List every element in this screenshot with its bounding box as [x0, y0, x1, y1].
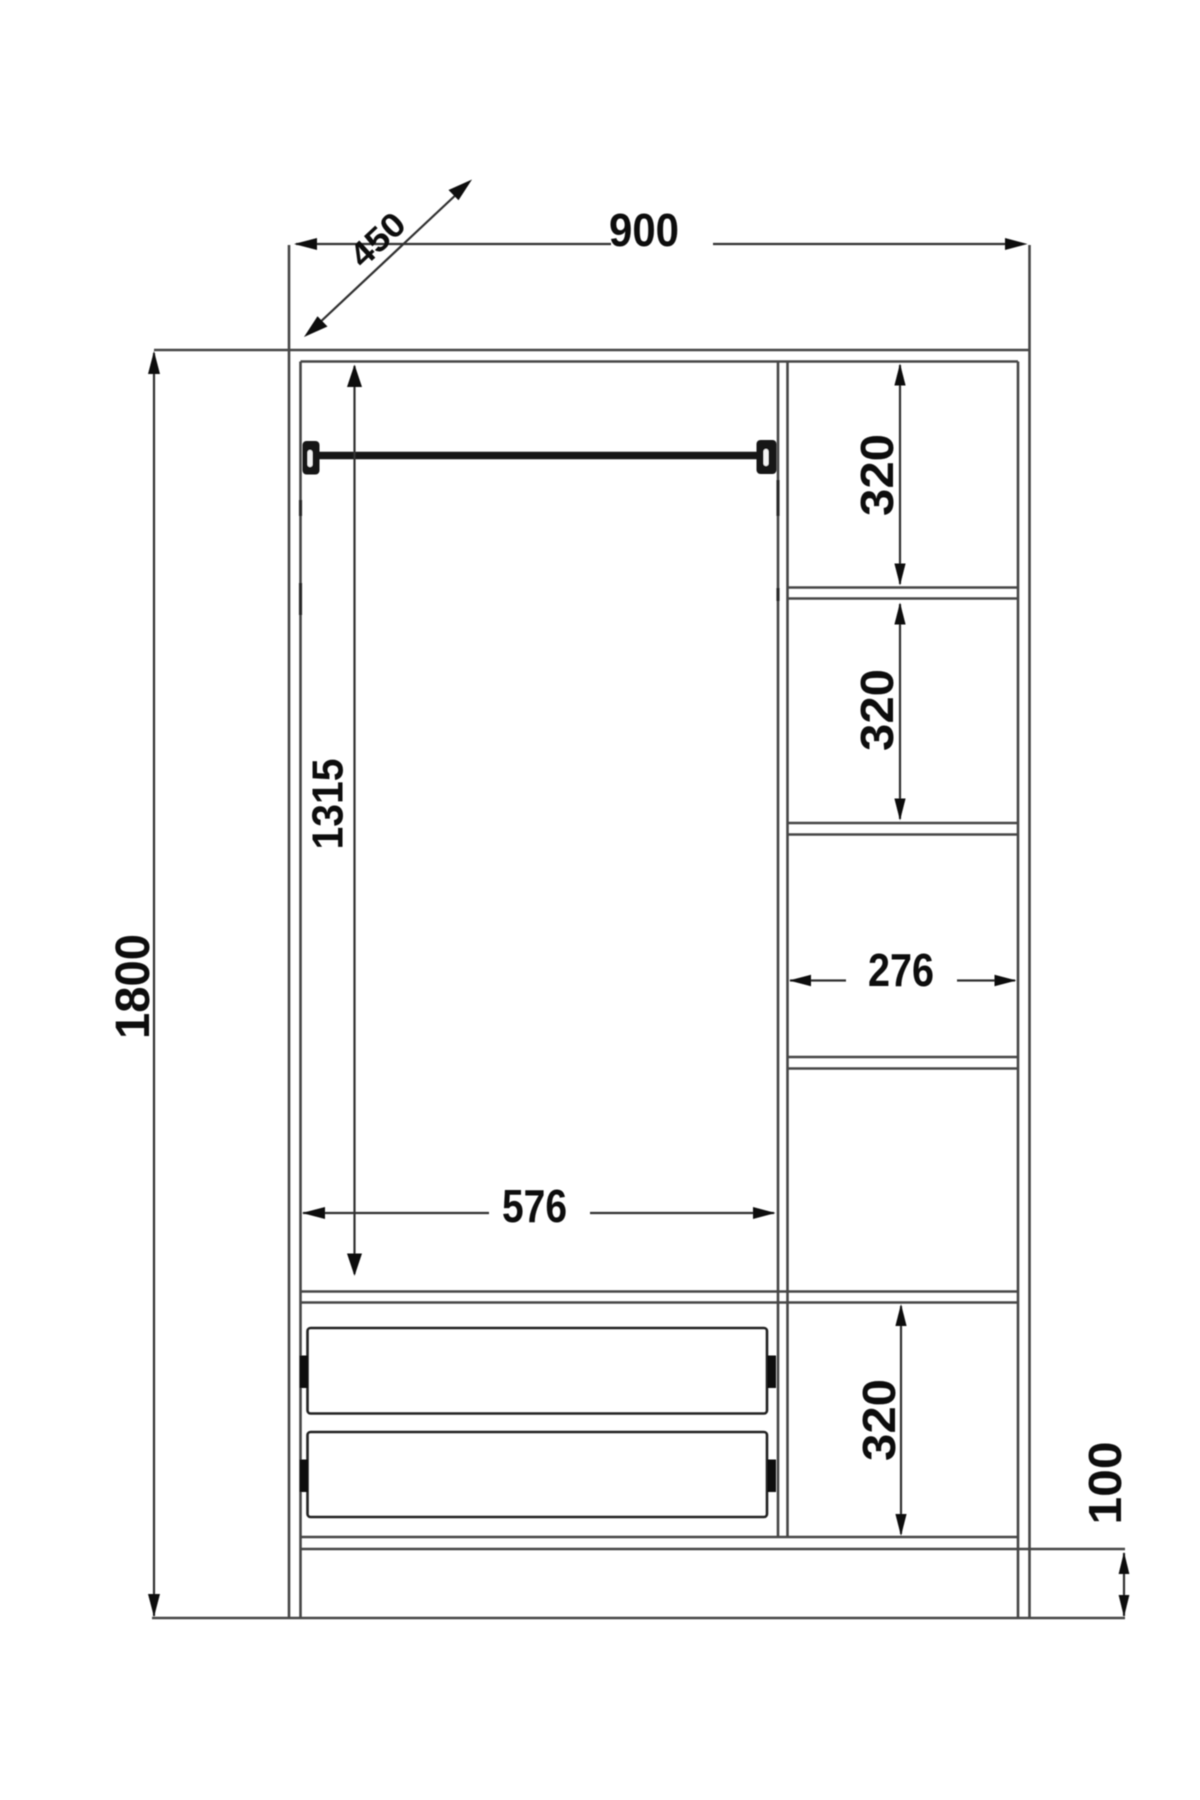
svg-text:1315: 1315: [304, 759, 353, 850]
svg-text:276: 276: [868, 944, 934, 996]
svg-text:320: 320: [853, 1379, 905, 1461]
svg-text:1800: 1800: [107, 934, 160, 1039]
svg-text:900: 900: [609, 204, 679, 256]
svg-text:320: 320: [851, 669, 903, 751]
svg-text:320: 320: [851, 434, 903, 516]
svg-text:576: 576: [502, 1180, 567, 1232]
svg-text:100: 100: [1079, 1442, 1131, 1525]
